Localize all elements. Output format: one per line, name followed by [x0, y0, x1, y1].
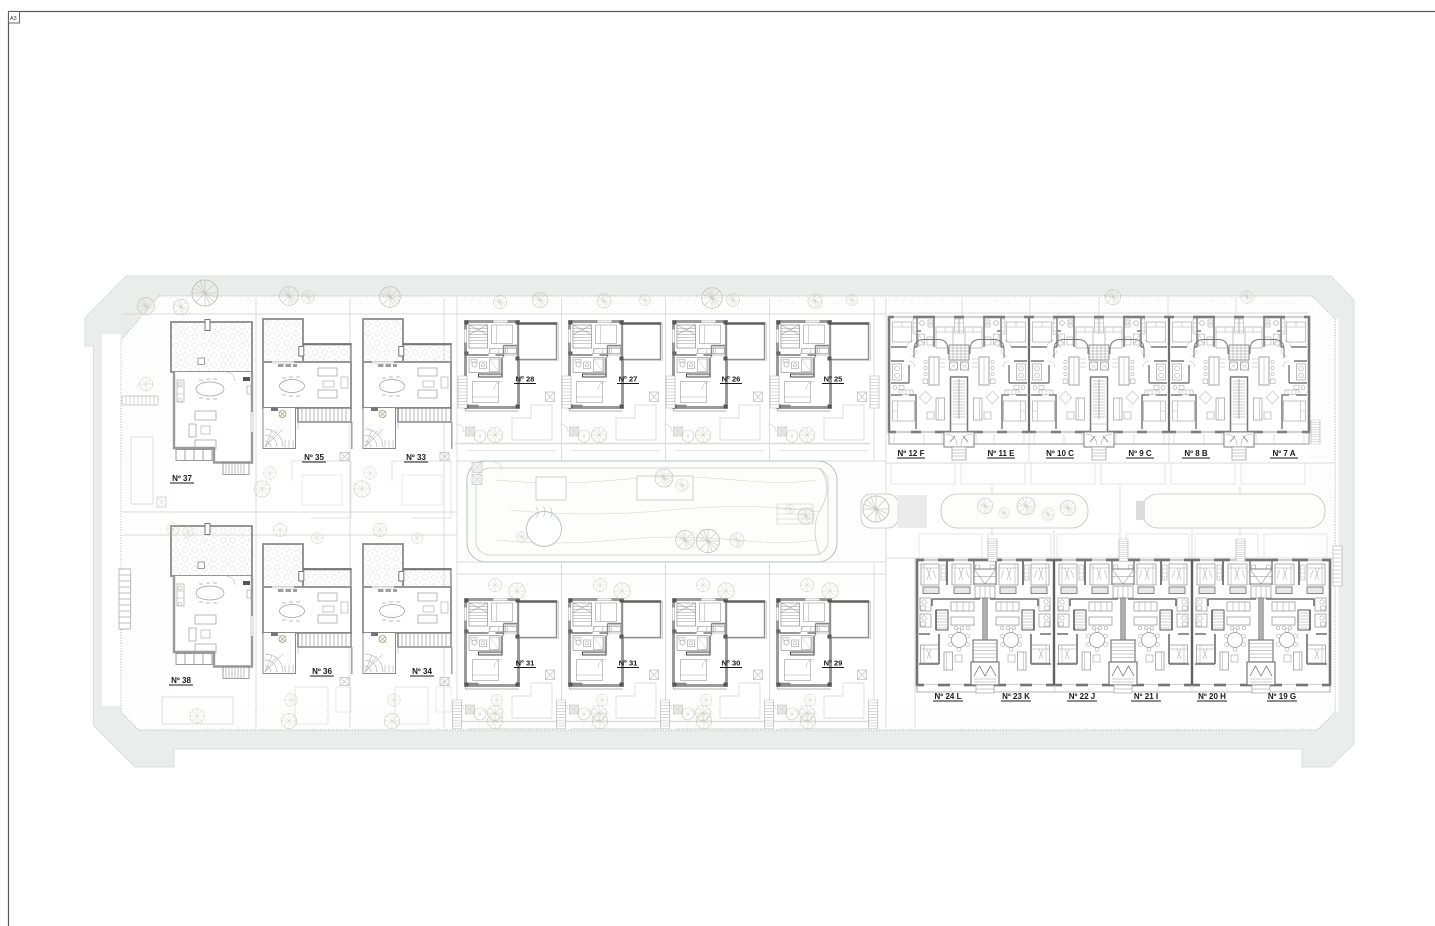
svg-text:Nº 27: Nº 27 — [619, 375, 638, 384]
svg-text:Nº 23 K: Nº 23 K — [1002, 692, 1030, 701]
svg-text:Nº 10 C: Nº 10 C — [1046, 449, 1074, 458]
svg-text:Nº 31: Nº 31 — [516, 659, 536, 668]
svg-text:Nº 38: Nº 38 — [171, 676, 191, 685]
svg-text:Nº 29: Nº 29 — [824, 659, 843, 668]
svg-text:Nº 26: Nº 26 — [722, 375, 741, 384]
svg-text:Nº 8 B: Nº 8 B — [1184, 449, 1208, 458]
svg-text:Nº 36: Nº 36 — [312, 667, 332, 676]
svg-text:A3: A3 — [10, 16, 17, 22]
svg-text:Nº 19 G: Nº 19 G — [1268, 692, 1296, 701]
svg-text:Nº 37: Nº 37 — [172, 474, 192, 483]
svg-text:Nº 9 C: Nº 9 C — [1128, 449, 1152, 458]
svg-text:Nº 22 J: Nº 22 J — [1069, 692, 1096, 701]
svg-text:Nº 12 F: Nº 12 F — [898, 449, 925, 458]
svg-text:Nº 20 H: Nº 20 H — [1198, 692, 1226, 701]
svg-text:Nº 25: Nº 25 — [824, 375, 844, 384]
svg-text:Nº 31: Nº 31 — [619, 659, 639, 668]
svg-text:Nº 21 I: Nº 21 I — [1134, 692, 1158, 701]
svg-text:Nº 28: Nº 28 — [516, 375, 535, 384]
svg-text:Nº 7 A: Nº 7 A — [1272, 449, 1295, 458]
svg-text:Nº 24 L: Nº 24 L — [935, 692, 962, 701]
svg-text:Nº 30: Nº 30 — [722, 659, 741, 668]
svg-text:Nº 34: Nº 34 — [412, 667, 432, 676]
svg-text:Nº 11 E: Nº 11 E — [988, 449, 1016, 458]
